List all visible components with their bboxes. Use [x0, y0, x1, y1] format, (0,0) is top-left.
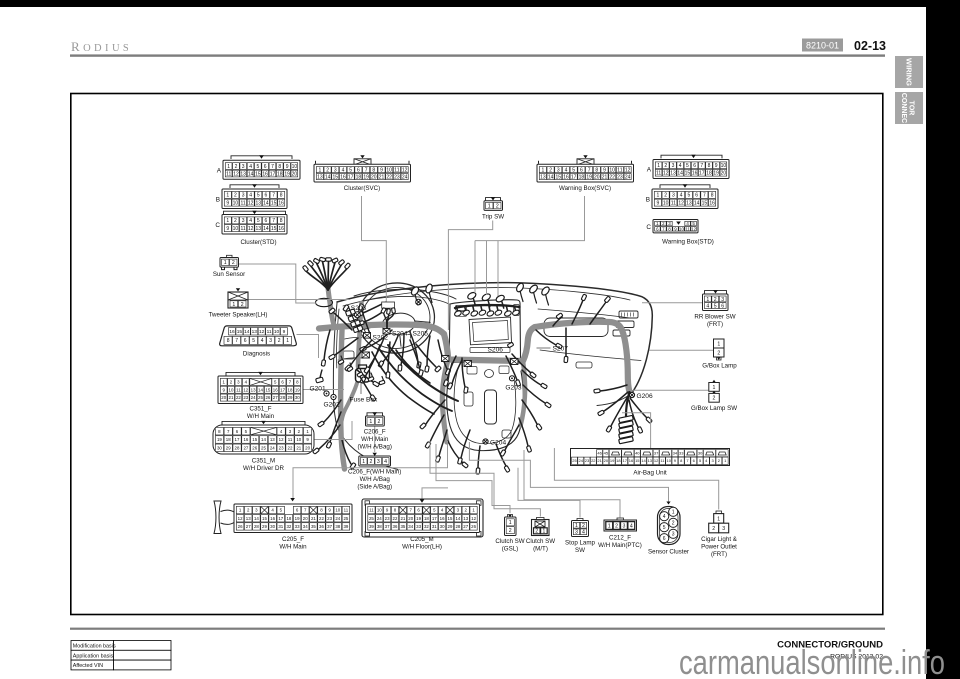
svg-text:20: 20 — [721, 171, 727, 177]
svg-text:40: 40 — [635, 451, 640, 456]
svg-text:19: 19 — [416, 516, 421, 521]
svg-text:13: 13 — [251, 387, 256, 392]
svg-text:18: 18 — [356, 174, 362, 180]
svg-text:27: 27 — [243, 445, 248, 450]
svg-text:4: 4 — [582, 530, 585, 536]
svg-text:30: 30 — [440, 524, 445, 529]
svg-text:Affected VIN: Affected VIN — [73, 663, 103, 669]
svg-text:12: 12 — [402, 168, 408, 174]
svg-text:1: 1 — [226, 193, 229, 199]
svg-text:1: 1 — [226, 218, 229, 224]
svg-text:RR Blower SW: RR Blower SW — [694, 314, 735, 321]
svg-text:S207: S207 — [553, 346, 569, 353]
svg-text:Tweeter Speaker(LH): Tweeter Speaker(LH) — [209, 312, 268, 319]
svg-text:27: 27 — [246, 524, 251, 529]
svg-text:12: 12 — [471, 516, 476, 521]
svg-text:33: 33 — [295, 524, 300, 529]
svg-text:23: 23 — [585, 458, 590, 463]
svg-text:9: 9 — [715, 163, 718, 169]
svg-text:Cluster(SVC): Cluster(SVC) — [344, 185, 380, 192]
svg-text:14: 14 — [455, 516, 460, 521]
svg-text:19: 19 — [586, 174, 592, 180]
svg-text:4: 4 — [384, 459, 387, 465]
svg-text:22: 22 — [236, 395, 241, 400]
svg-text:4: 4 — [706, 303, 709, 309]
svg-text:2: 2 — [232, 260, 235, 266]
svg-text:7: 7 — [703, 193, 706, 199]
svg-text:14: 14 — [254, 516, 259, 521]
svg-text:8: 8 — [280, 218, 283, 224]
svg-text:20: 20 — [408, 516, 413, 521]
svg-text:C205_M: C205_M — [410, 536, 433, 543]
svg-text:4: 4 — [680, 193, 683, 199]
svg-text:Power Outlet: Power Outlet — [701, 544, 737, 551]
svg-text:16: 16 — [278, 200, 284, 206]
svg-text:30: 30 — [217, 445, 222, 450]
svg-text:7: 7 — [271, 164, 274, 170]
svg-text:24: 24 — [270, 445, 275, 450]
svg-text:W/H Main: W/H Main — [361, 436, 389, 443]
svg-text:46: 46 — [597, 451, 602, 456]
svg-text:2: 2 — [535, 529, 538, 535]
svg-text:3: 3 — [242, 218, 245, 224]
svg-text:1: 1 — [542, 168, 545, 174]
svg-text:12: 12 — [654, 458, 659, 463]
svg-text:3: 3 — [575, 530, 578, 536]
svg-text:18: 18 — [424, 516, 429, 521]
svg-text:10: 10 — [229, 387, 234, 392]
svg-text:3: 3 — [242, 193, 245, 199]
svg-text:S202: S202 — [373, 335, 389, 342]
svg-text:22: 22 — [288, 445, 293, 450]
svg-text:28: 28 — [280, 395, 285, 400]
svg-text:19: 19 — [295, 387, 300, 392]
svg-text:25: 25 — [261, 445, 266, 450]
svg-text:WIRING: WIRING — [905, 58, 914, 86]
svg-text:4: 4 — [663, 514, 666, 520]
svg-text:39: 39 — [343, 524, 348, 529]
svg-text:A: A — [217, 167, 222, 174]
svg-text:7: 7 — [365, 168, 368, 174]
svg-text:23: 23 — [394, 174, 400, 180]
svg-text:38: 38 — [335, 524, 340, 529]
svg-text:1: 1 — [717, 516, 720, 522]
svg-text:11: 11 — [240, 200, 245, 206]
svg-text:2: 2 — [717, 350, 720, 356]
svg-text:Sun Sensor: Sun Sensor — [213, 271, 245, 278]
svg-text:5: 5 — [349, 168, 352, 174]
svg-text:1: 1 — [488, 204, 491, 210]
svg-text:12: 12 — [625, 168, 631, 174]
svg-text:17: 17 — [348, 174, 354, 180]
svg-text:27: 27 — [273, 395, 278, 400]
svg-text:24: 24 — [402, 174, 408, 180]
svg-text:C: C — [215, 222, 220, 229]
svg-text:12: 12 — [691, 226, 696, 231]
svg-text:2: 2 — [714, 297, 717, 303]
svg-text:3: 3 — [623, 523, 626, 529]
svg-text:6: 6 — [264, 164, 267, 170]
svg-text:36: 36 — [393, 524, 398, 529]
svg-text:35: 35 — [311, 524, 316, 529]
svg-text:(FRT): (FRT) — [707, 321, 723, 328]
svg-text:5: 5 — [257, 164, 260, 170]
svg-text:34: 34 — [408, 524, 413, 529]
svg-text:15: 15 — [448, 516, 453, 521]
svg-text:2: 2 — [370, 459, 373, 465]
svg-text:25: 25 — [343, 516, 348, 521]
svg-text:19: 19 — [610, 458, 615, 463]
svg-text:1: 1 — [319, 168, 322, 174]
svg-text:13: 13 — [256, 226, 262, 232]
svg-text:8210-01: 8210-01 — [806, 40, 839, 50]
svg-text:21: 21 — [597, 458, 602, 463]
svg-text:1: 1 — [657, 193, 660, 199]
svg-text:24: 24 — [578, 458, 583, 463]
svg-text:32: 32 — [286, 524, 291, 529]
svg-text:16: 16 — [270, 516, 275, 521]
svg-text:SW: SW — [575, 547, 585, 554]
svg-text:1: 1 — [575, 523, 578, 529]
svg-text:23: 23 — [279, 445, 284, 450]
svg-text:12: 12 — [238, 516, 243, 521]
svg-text:14: 14 — [263, 226, 269, 232]
svg-text:37: 37 — [327, 524, 332, 529]
svg-text:6: 6 — [580, 168, 583, 174]
svg-text:G203: G203 — [505, 385, 521, 392]
svg-text:20: 20 — [594, 174, 600, 180]
svg-text:34: 34 — [303, 524, 308, 529]
svg-text:45: 45 — [604, 451, 609, 456]
svg-text:18: 18 — [579, 174, 585, 180]
svg-text:12: 12 — [678, 200, 684, 206]
svg-text:Clutch SW: Clutch SW — [495, 538, 524, 545]
svg-text:Warning Box(STD): Warning Box(STD) — [662, 239, 714, 246]
svg-text:20: 20 — [221, 395, 226, 400]
svg-text:11: 11 — [288, 437, 293, 442]
svg-text:20: 20 — [371, 174, 377, 180]
svg-text:(GSL): (GSL) — [502, 546, 519, 553]
svg-text:16: 16 — [262, 171, 268, 177]
svg-text:2: 2 — [713, 396, 716, 402]
svg-text:2: 2 — [241, 302, 244, 308]
svg-text:Fuse Box: Fuse Box — [350, 397, 379, 404]
svg-text:20: 20 — [303, 516, 308, 521]
svg-text:17: 17 — [270, 171, 276, 177]
svg-text:12: 12 — [248, 200, 254, 206]
svg-text:S203: S203 — [351, 305, 367, 312]
svg-text:11: 11 — [671, 200, 676, 206]
svg-text:W/H Main: W/H Main — [279, 544, 307, 551]
svg-text:4: 4 — [565, 168, 568, 174]
svg-text:2: 2 — [664, 163, 667, 169]
svg-text:C205_F: C205_F — [282, 536, 304, 543]
svg-text:5: 5 — [257, 193, 260, 199]
svg-text:8: 8 — [227, 338, 230, 344]
svg-text:7: 7 — [272, 193, 275, 199]
svg-text:S206: S206 — [488, 346, 504, 353]
svg-text:37: 37 — [385, 524, 390, 529]
svg-text:3: 3 — [672, 163, 675, 169]
svg-text:1: 1 — [543, 529, 546, 535]
svg-text:(FRT): (FRT) — [711, 551, 727, 558]
svg-text:15: 15 — [635, 458, 640, 463]
svg-text:13: 13 — [256, 200, 262, 206]
svg-text:02-13: 02-13 — [854, 39, 886, 53]
svg-text:14: 14 — [677, 171, 683, 177]
svg-text:2: 2 — [615, 523, 618, 529]
svg-text:W/H A/Bag: W/H A/Bag — [360, 476, 391, 483]
svg-text:Warning Box(SVC): Warning Box(SVC) — [559, 185, 611, 192]
svg-text:38: 38 — [377, 524, 382, 529]
svg-text:25: 25 — [369, 516, 374, 521]
svg-text:18: 18 — [286, 516, 291, 521]
svg-text:TOR: TOR — [908, 101, 915, 116]
svg-text:11: 11 — [685, 226, 690, 231]
svg-text:G/Box Lamp SW: G/Box Lamp SW — [691, 405, 737, 412]
svg-text:26: 26 — [471, 524, 476, 529]
svg-text:6: 6 — [693, 163, 696, 169]
svg-text:15: 15 — [262, 516, 267, 521]
svg-text:6: 6 — [265, 193, 268, 199]
svg-text:8: 8 — [372, 168, 375, 174]
svg-text:10: 10 — [274, 329, 280, 335]
svg-text:G/Box Lamp: G/Box Lamp — [702, 363, 737, 370]
svg-text:16: 16 — [692, 171, 698, 177]
svg-text:B: B — [646, 197, 650, 204]
svg-text:21: 21 — [311, 516, 316, 521]
svg-text:4: 4 — [261, 338, 264, 344]
svg-text:5: 5 — [714, 303, 717, 309]
svg-text:10: 10 — [233, 226, 239, 232]
svg-text:22: 22 — [393, 516, 398, 521]
svg-text:1: 1 — [224, 260, 227, 266]
svg-text:1: 1 — [717, 341, 720, 347]
svg-text:1: 1 — [286, 338, 289, 344]
svg-text:24: 24 — [625, 174, 631, 180]
svg-text:W/H Main: W/H Main — [247, 413, 275, 420]
svg-text:4: 4 — [630, 523, 633, 529]
svg-text:3: 3 — [269, 338, 272, 344]
svg-text:1: 1 — [509, 520, 512, 526]
svg-text:G202: G202 — [324, 402, 340, 409]
svg-text:26: 26 — [252, 445, 257, 450]
svg-text:Modification basis: Modification basis — [73, 644, 116, 650]
svg-text:9: 9 — [603, 168, 606, 174]
svg-text:28: 28 — [254, 524, 259, 529]
svg-text:4: 4 — [249, 218, 252, 224]
svg-text:16: 16 — [709, 200, 715, 206]
svg-text:G201: G201 — [310, 386, 326, 393]
svg-text:4: 4 — [679, 163, 682, 169]
svg-text:23: 23 — [617, 174, 623, 180]
svg-text:Air-Bag Unit: Air-Bag Unit — [633, 470, 667, 477]
svg-text:17: 17 — [699, 171, 705, 177]
svg-text:(W/H A/Bag): (W/H A/Bag) — [358, 444, 392, 451]
svg-text:5: 5 — [252, 338, 255, 344]
svg-text:32: 32 — [424, 524, 429, 529]
svg-text:21: 21 — [379, 174, 385, 180]
svg-text:19: 19 — [295, 516, 300, 521]
svg-text:4: 4 — [342, 168, 345, 174]
svg-text:C212_F: C212_F — [609, 535, 631, 542]
svg-text:Stop Lamp: Stop Lamp — [565, 540, 595, 547]
svg-text:10: 10 — [666, 458, 671, 463]
svg-text:3: 3 — [672, 193, 675, 199]
svg-text:10: 10 — [721, 163, 727, 169]
svg-text:10: 10 — [386, 168, 392, 174]
svg-text:18: 18 — [226, 437, 231, 442]
svg-text:22: 22 — [591, 458, 596, 463]
svg-text:28: 28 — [235, 445, 240, 450]
svg-text:A: A — [647, 167, 652, 174]
svg-text:31: 31 — [278, 524, 283, 529]
svg-text:Sensor Cluster: Sensor Cluster — [648, 549, 689, 556]
svg-text:1: 1 — [362, 459, 365, 465]
svg-text:7: 7 — [235, 338, 238, 344]
svg-text:15: 15 — [333, 174, 339, 180]
svg-text:15: 15 — [255, 171, 261, 177]
svg-text:11: 11 — [236, 387, 241, 392]
svg-text:Application basis: Application basis — [73, 653, 114, 659]
svg-text:13: 13 — [670, 171, 676, 177]
svg-text:2: 2 — [234, 218, 237, 224]
svg-text:10: 10 — [377, 508, 382, 513]
svg-text:29: 29 — [262, 524, 267, 529]
svg-text:15: 15 — [685, 171, 691, 177]
svg-text:carmanualsonline.info: carmanualsonline.info — [679, 644, 945, 679]
svg-text:14: 14 — [248, 171, 254, 177]
svg-text:2: 2 — [672, 521, 675, 527]
svg-text:16: 16 — [563, 174, 569, 180]
svg-text:14: 14 — [258, 387, 263, 392]
svg-text:2: 2 — [509, 528, 512, 534]
svg-text:13: 13 — [317, 174, 323, 180]
svg-text:2: 2 — [496, 204, 499, 210]
svg-text:21: 21 — [229, 395, 234, 400]
svg-text:37: 37 — [654, 451, 659, 456]
svg-text:23: 23 — [243, 395, 248, 400]
svg-text:3: 3 — [377, 459, 380, 465]
svg-text:1: 1 — [672, 510, 675, 516]
svg-text:16: 16 — [440, 516, 445, 521]
svg-text:Clutch SW: Clutch SW — [526, 538, 555, 545]
svg-text:9: 9 — [226, 226, 229, 232]
svg-text:10: 10 — [292, 164, 298, 170]
svg-text:17: 17 — [278, 516, 283, 521]
svg-text:33: 33 — [416, 524, 421, 529]
svg-text:18: 18 — [277, 171, 283, 177]
svg-text:6: 6 — [721, 303, 724, 309]
svg-text:1: 1 — [706, 297, 709, 303]
svg-text:W/H Floor(LH): W/H Floor(LH) — [402, 544, 442, 551]
svg-text:6: 6 — [663, 536, 666, 542]
svg-text:2: 2 — [582, 523, 585, 529]
svg-text:11: 11 — [617, 168, 622, 174]
svg-text:6: 6 — [695, 193, 698, 199]
svg-text:1: 1 — [608, 523, 611, 529]
svg-text:29: 29 — [288, 395, 293, 400]
svg-text:Cigar Light &: Cigar Light & — [701, 536, 738, 543]
svg-text:29: 29 — [448, 524, 453, 529]
svg-text:16: 16 — [340, 174, 346, 180]
svg-text:16: 16 — [229, 329, 235, 335]
svg-text:21: 21 — [296, 445, 301, 450]
svg-text:13: 13 — [540, 174, 546, 180]
svg-text:34: 34 — [673, 451, 678, 456]
svg-text:10: 10 — [335, 508, 340, 513]
svg-text:10: 10 — [296, 437, 301, 442]
svg-text:31: 31 — [432, 524, 437, 529]
svg-text:17: 17 — [280, 387, 285, 392]
svg-text:14: 14 — [261, 437, 266, 442]
svg-text:4: 4 — [249, 164, 252, 170]
svg-text:12: 12 — [279, 437, 284, 442]
svg-text:18: 18 — [288, 387, 293, 392]
svg-text:B: B — [216, 197, 220, 204]
svg-text:14: 14 — [548, 174, 554, 180]
svg-text:7: 7 — [272, 218, 275, 224]
svg-text:C206_F: C206_F — [364, 429, 386, 436]
svg-text:Diagnosis: Diagnosis — [243, 351, 270, 358]
svg-text:9: 9 — [657, 200, 660, 206]
svg-text:29: 29 — [226, 445, 231, 450]
svg-text:22: 22 — [386, 174, 392, 180]
svg-text:17: 17 — [571, 174, 577, 180]
svg-text:2: 2 — [326, 168, 329, 174]
svg-text:20: 20 — [305, 445, 310, 450]
svg-text:13: 13 — [246, 516, 251, 521]
svg-text:2: 2 — [549, 168, 552, 174]
svg-text:3: 3 — [557, 168, 560, 174]
svg-text:3: 3 — [722, 526, 725, 532]
svg-text:35: 35 — [400, 524, 405, 529]
svg-text:12: 12 — [233, 171, 239, 177]
svg-text:36: 36 — [319, 524, 324, 529]
svg-text:9: 9 — [283, 329, 286, 335]
svg-text:16: 16 — [273, 387, 278, 392]
svg-text:11: 11 — [267, 329, 272, 335]
svg-text:27: 27 — [463, 524, 468, 529]
svg-text:10: 10 — [663, 200, 669, 206]
svg-text:(M/T): (M/T) — [533, 546, 548, 553]
svg-text:1: 1 — [657, 163, 660, 169]
svg-text:15: 15 — [237, 329, 243, 335]
svg-text:19: 19 — [363, 174, 369, 180]
svg-text:11: 11 — [369, 508, 374, 513]
svg-text:C206_F(W/H Main): C206_F(W/H Main) — [348, 469, 401, 476]
svg-text:12: 12 — [663, 171, 669, 177]
svg-text:15: 15 — [702, 200, 708, 206]
svg-text:21: 21 — [602, 174, 608, 180]
svg-text:1: 1 — [227, 164, 230, 170]
svg-text:Trip SW: Trip SW — [482, 214, 504, 221]
svg-text:15: 15 — [556, 174, 562, 180]
svg-text:2: 2 — [664, 193, 667, 199]
svg-text:20: 20 — [292, 171, 298, 177]
svg-text:25: 25 — [572, 458, 577, 463]
svg-text:18: 18 — [706, 171, 712, 177]
svg-text:13: 13 — [270, 437, 275, 442]
svg-text:8: 8 — [595, 168, 598, 174]
svg-text:8: 8 — [711, 193, 714, 199]
svg-text:3: 3 — [721, 297, 724, 303]
svg-text:11: 11 — [394, 168, 399, 174]
svg-text:2: 2 — [278, 338, 281, 344]
svg-text:22: 22 — [319, 516, 324, 521]
svg-text:7: 7 — [588, 168, 591, 174]
svg-text:17: 17 — [622, 458, 627, 463]
